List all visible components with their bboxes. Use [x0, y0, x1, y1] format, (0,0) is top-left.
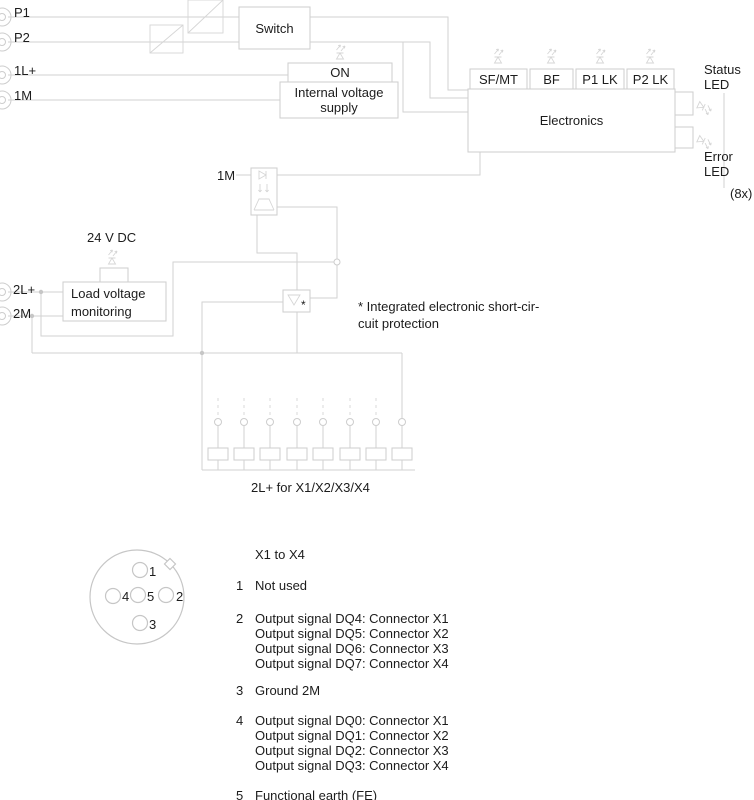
bf-label: BF: [530, 69, 573, 89]
pin-label-2: 2: [176, 589, 183, 604]
status-led-box: [675, 92, 693, 115]
legend-item: Functional earth (FE): [255, 788, 377, 800]
on-label: ON: [288, 63, 392, 82]
bus-label: 2L+ for X1/X2/X3/X4: [251, 480, 370, 495]
connector-pinout: [90, 550, 184, 644]
pin-label-4: 4: [122, 589, 129, 604]
output-columns: [208, 398, 412, 470]
terminal-1l-label: 1L+: [14, 63, 36, 78]
note-line-2: cuit protection: [358, 315, 439, 332]
legend-num-3: 3: [236, 683, 243, 698]
terminal-p2-label: P2: [14, 30, 30, 45]
opto-1m-label: 1M: [217, 168, 235, 183]
legend-num-5: 5: [236, 788, 243, 800]
legend-item: Output signal DQ4: Connector X1: [255, 611, 449, 626]
legend-num-1: 1: [236, 578, 243, 593]
terminal-2m-label: 2M: [13, 306, 31, 321]
wire-supply-to-electronics: [403, 42, 468, 112]
wire-p1: [8, 17, 468, 90]
error-led-box: [675, 127, 693, 148]
junction-node: [334, 259, 340, 265]
pin-4: [106, 589, 121, 604]
error-led-label-1: Error: [704, 149, 733, 164]
legend-item: Output signal DQ7: Connector X4: [255, 656, 449, 671]
status-led-label-1: Status: [704, 62, 741, 77]
note-line-1: * Integrated electronic short-cir-: [358, 298, 539, 315]
ivs-label-2: supply: [280, 100, 398, 115]
legend-item: Output signal DQ1: Connector X2: [255, 728, 449, 743]
lvm-input-box: [100, 268, 128, 282]
isolation-slash-icon: [150, 0, 223, 53]
pin-label-3: 3: [149, 617, 156, 632]
led-count-label: (8x): [730, 186, 752, 201]
wire-protection-left: [202, 302, 283, 353]
legend-header: X1 to X4: [255, 547, 305, 562]
wire-to-protection: [310, 265, 337, 298]
pin-1: [133, 563, 148, 578]
p1lk-label: P1 LK: [576, 69, 624, 89]
p2lk-label: P2 LK: [627, 69, 674, 89]
pin-label-5: 5: [147, 589, 154, 604]
wire-opto-right: [277, 207, 337, 259]
legend-item: Output signal DQ5: Connector X2: [255, 626, 449, 641]
terminal-2l-label: 2L+: [13, 282, 35, 297]
lvm-label-2: monitoring: [71, 304, 166, 319]
sfmt-label: SF/MT: [470, 69, 527, 89]
junction-dot: [39, 290, 43, 294]
lvm-label-1: Load voltage: [71, 286, 166, 301]
pin-2: [159, 588, 174, 603]
pin-5: [131, 588, 146, 603]
terminal-p1-label: P1: [14, 5, 30, 20]
electronics-label: Electronics: [468, 89, 675, 152]
legend-item: Output signal DQ2: Connector X3: [255, 743, 449, 758]
legend-item: Ground 2M: [255, 683, 320, 698]
24vdc-label: 24 V DC: [87, 230, 136, 245]
ivs-label-1: Internal voltage: [280, 85, 398, 100]
legend-item: Output signal DQ3: Connector X4: [255, 758, 449, 773]
wire-opto-bottom: [257, 215, 297, 290]
wire-p2: [8, 42, 468, 98]
legend-num-4: 4: [236, 713, 243, 728]
legend-item: Not used: [255, 578, 307, 593]
switch-label: Switch: [239, 7, 310, 49]
asterisk-mark: *: [301, 298, 306, 312]
pin-3: [133, 616, 148, 631]
terminal-1m-label: 1M: [14, 88, 32, 103]
junction-dot: [200, 351, 204, 355]
block-diagram: P1 P2 1L+ 1M 2L+ 2M Switch ON Internal v…: [0, 0, 754, 800]
status-led-label-2: LED: [704, 77, 729, 92]
legend-item: Output signal DQ6: Connector X3: [255, 641, 449, 656]
legend-num-2: 2: [236, 611, 243, 626]
pin-label-1: 1: [149, 564, 156, 579]
error-led-label-2: LED: [704, 164, 729, 179]
legend-item: Output signal DQ0: Connector X1: [255, 713, 449, 728]
socket-circle-icon: [0, 8, 11, 325]
optocoupler-icon: [251, 168, 277, 215]
